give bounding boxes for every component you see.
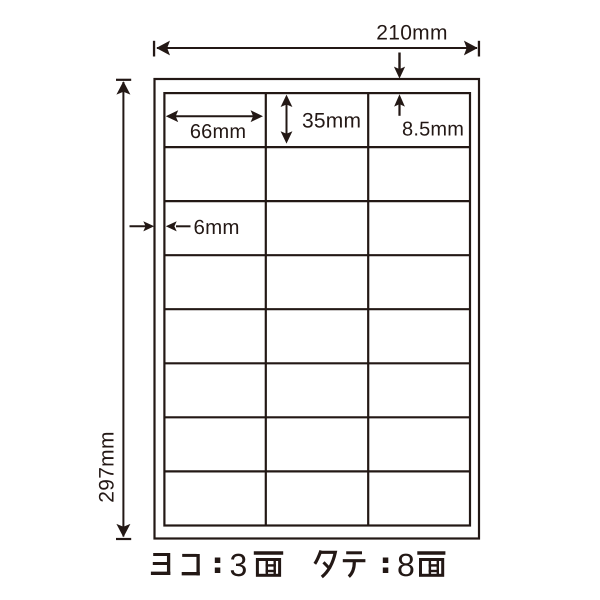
svg-text:8.5mm: 8.5mm <box>402 119 464 141</box>
svg-text:8: 8 <box>397 547 415 583</box>
svg-text:3: 3 <box>230 547 248 583</box>
svg-text:297mm: 297mm <box>96 431 119 503</box>
svg-text:6mm: 6mm <box>194 216 240 239</box>
svg-text:66mm: 66mm <box>190 121 246 143</box>
svg-text:35mm: 35mm <box>302 110 361 133</box>
svg-text:210mm: 210mm <box>376 22 448 45</box>
